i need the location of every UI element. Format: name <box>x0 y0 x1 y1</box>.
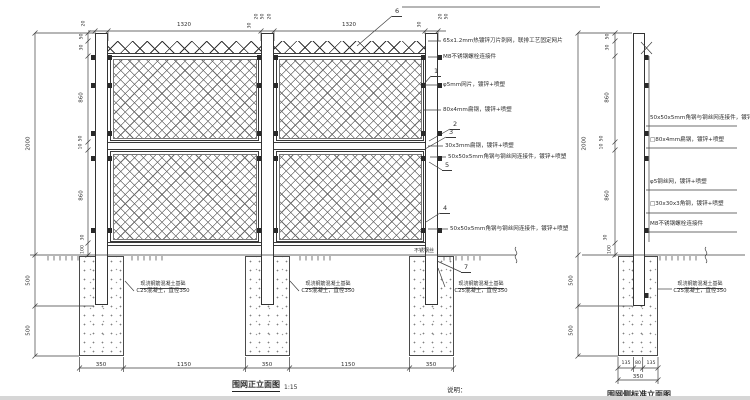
dim-top: 20 <box>267 0 274 35</box>
dim-embed-side: 500 <box>569 313 576 349</box>
dim-top: 50 <box>260 0 267 35</box>
label-flat80-side: □80x4mm扁钢，镀锌+喷塑 <box>650 137 724 143</box>
dim-total-height: 2000 <box>26 126 33 162</box>
dim-embed-side: 500 <box>569 263 576 299</box>
middle-rail <box>274 142 425 150</box>
label-razor-wire: 65x1.2mm热镀锌刀片刺网，联排工艺固定网片 <box>443 38 563 44</box>
label-bolt: M8不锈钢螺栓连接件 <box>443 54 496 60</box>
dim-chain: 860 <box>79 80 86 116</box>
dim-top: 30 <box>417 7 424 43</box>
fence-post-side <box>633 33 645 306</box>
label-angle-bottom: 50x50x5mm角钢与钢丝网连接件，镀锌+喷塑 <box>450 226 568 232</box>
bottom-angle-rail <box>108 242 261 246</box>
label-angle-mid: 50x50x5mm角钢与钢丝网连接件，镀锌+喷塑 <box>448 154 566 160</box>
dim-found-total-side: 350 <box>608 374 668 380</box>
window-bottom-edge <box>0 396 750 400</box>
dim-chain-side: 30 <box>605 30 612 66</box>
balloon-5: 5 <box>442 162 452 171</box>
balloon-3: 3 <box>446 129 456 138</box>
foundation-label-side: 现浇钢筋混凝土基础 C25混凝土，直径350 <box>661 281 739 294</box>
dim-bottom: 350 <box>401 362 461 368</box>
dim-chain-side: 860 <box>605 178 612 214</box>
dim-top: 50 <box>444 0 451 35</box>
mesh-panel-upper-left <box>110 56 259 141</box>
dim-top: 1320 <box>319 22 379 28</box>
balloon-7: 7 <box>461 264 471 273</box>
label-bolt-side: M8不锈钢螺栓连接件 <box>650 221 703 227</box>
balloon-6: 6 <box>392 8 402 17</box>
dim-bottom: 350 <box>237 362 297 368</box>
razor-top-strip <box>274 41 425 54</box>
foundation-label: 现浇钢筋混凝土基础 C25混凝土，直径350 <box>124 281 202 294</box>
dim-bottom: 1150 <box>154 362 214 368</box>
dim-chain-side: 10 <box>599 129 606 165</box>
dim-chain: 860 <box>79 178 86 214</box>
fence-post <box>95 33 108 305</box>
mesh-panel-lower-left <box>110 151 259 242</box>
foundation-label: 现浇钢筋混凝土基础 C25混凝土，直径350 <box>289 281 367 294</box>
balloon-4: 4 <box>440 205 450 214</box>
fence-post <box>261 33 274 305</box>
foundation-label: 现浇钢筋混凝土基础 C25混凝土，直径350 <box>442 281 520 294</box>
middle-rail <box>108 142 261 150</box>
dim-found-side: 135 <box>639 361 663 367</box>
dim-chain: 10 <box>78 129 85 165</box>
dim-top: 20 <box>81 6 88 42</box>
label-mesh-side: φ5钢丝网，镀锌+喷塑 <box>650 179 707 185</box>
mesh-panel-upper-right <box>276 56 424 141</box>
dim-embed: 500 <box>26 313 33 349</box>
bottom-angle-rail <box>274 242 425 246</box>
razor-top-strip <box>108 41 261 54</box>
dim-top: 1320 <box>154 22 214 28</box>
label-stainless-wire: 不锈钢丝 <box>414 248 434 254</box>
label-flat-80: 80x4mm扁钢，镀锌+喷塑 <box>443 107 512 113</box>
front-view-title: 围网正立面图 <box>232 379 280 392</box>
front-view-scale: 1:15 <box>284 384 297 391</box>
dim-top: 30 <box>247 8 254 44</box>
label-angle-top-side: 50x50x5mm角钢与钢丝网连接件，镀锌+喷塑 <box>650 115 750 121</box>
balloon-1: 1 <box>431 68 441 77</box>
notes-heading: 说明： <box>447 387 467 393</box>
dim-bottom: 350 <box>71 362 131 368</box>
label-angle30-side: □30x30x3角钢，镀锌+喷塑 <box>650 201 724 207</box>
mesh-panel-lower-right <box>276 151 424 242</box>
dim-embed: 500 <box>26 263 33 299</box>
dim-chain-side: 100 <box>607 232 614 268</box>
dim-chain: 100 <box>80 232 87 268</box>
dim-total-height-side: 2000 <box>582 126 589 162</box>
dim-bottom: 1150 <box>318 362 378 368</box>
dim-chain-side: 860 <box>605 80 612 116</box>
label-flat-30: 30x3mm扁钢，镀锌+喷塑 <box>445 143 514 149</box>
cad-drawing-fence-elevation: 2000 50 30 860 50 10 860 30 100 500 500 … <box>0 0 750 400</box>
label-mesh: φ5mm网片，镀锌+喷塑 <box>443 82 505 88</box>
